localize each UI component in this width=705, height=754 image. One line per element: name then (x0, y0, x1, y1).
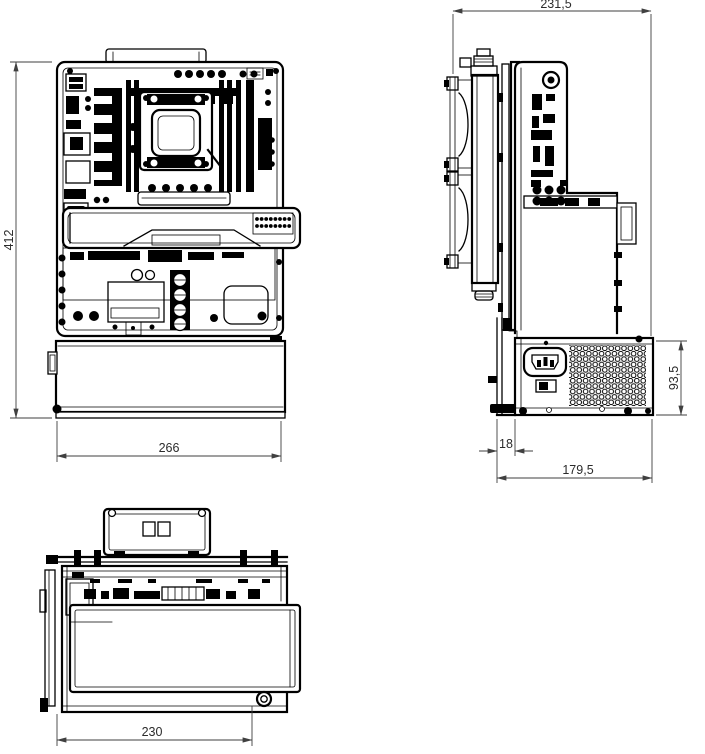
psu-side (515, 336, 653, 416)
rear-panel-lower (488, 318, 517, 415)
dim-label-231-5: 231,5 (540, 0, 571, 11)
front-view (48, 49, 300, 418)
psu-compartment-front (48, 336, 285, 418)
dimension-psu-offset: 18 (479, 419, 533, 483)
dim-label-93-5: 93,5 (667, 366, 681, 390)
dimension-front-width: 266 (57, 421, 281, 462)
engineering-drawing: 412 266 231,5 93,5 18 179,5 230 (0, 0, 705, 754)
dim-label-230: 230 (142, 725, 163, 739)
gpu-card-front (63, 208, 300, 248)
gpu-top (70, 605, 300, 692)
thumbscrew-foot (257, 692, 271, 706)
radiator-fans-side (444, 77, 472, 268)
dim-label-266: 266 (159, 441, 180, 455)
dim-label-179-5: 179,5 (562, 463, 593, 477)
dimension-psu-height: 93,5 (656, 341, 687, 415)
dimension-front-height: 412 (2, 62, 52, 418)
orthographic-views-svg: 412 266 231,5 93,5 18 179,5 230 (0, 0, 705, 754)
radiator-top (104, 509, 210, 557)
dim-label-18: 18 (499, 437, 513, 451)
top-view (40, 509, 300, 712)
radiator-side (460, 49, 498, 300)
side-view (444, 49, 653, 415)
psu-vent-grille (569, 345, 646, 406)
side-panel-top (40, 570, 55, 712)
dim-label-412: 412 (2, 230, 16, 251)
